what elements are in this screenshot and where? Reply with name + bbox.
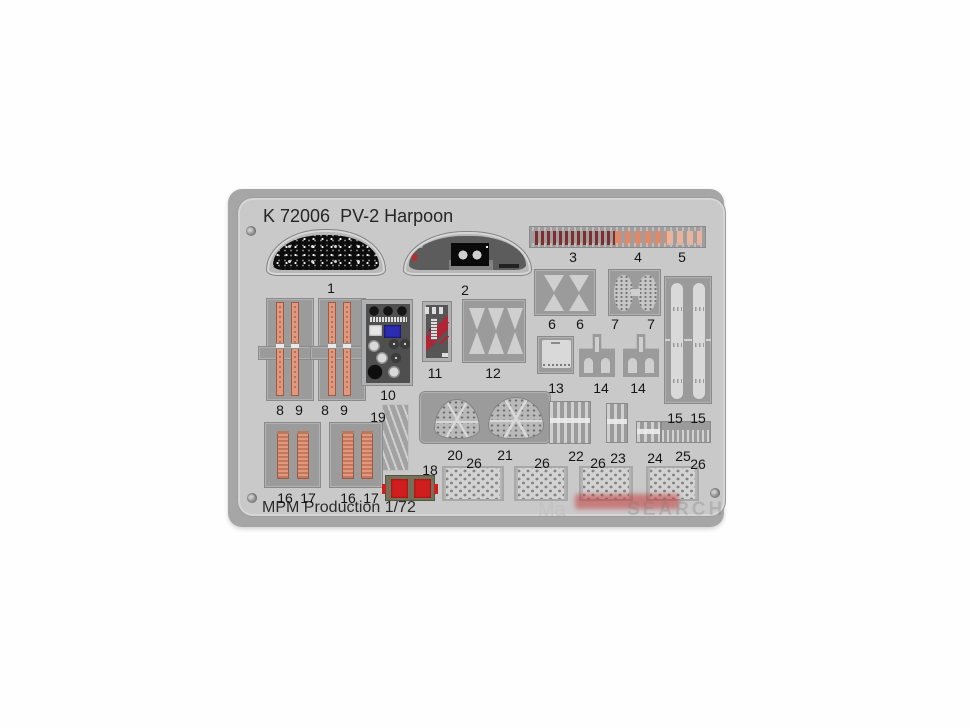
- part-12-plate: [462, 299, 526, 363]
- part-label-25: 25: [675, 449, 691, 463]
- part-16-seatbelt: [277, 431, 289, 479]
- part-10-console-panel: [361, 299, 413, 386]
- part-2-instrument-panel: [403, 231, 532, 276]
- part-label-16: 16: [277, 491, 293, 505]
- placard-white-speck: [442, 353, 448, 357]
- part-8-seatbelt: [328, 302, 336, 396]
- bracket-arch-cutout: [645, 358, 654, 373]
- instrument-panel-face: [273, 235, 379, 270]
- part-label-6: 6: [576, 317, 584, 331]
- part-18-red-placards: [385, 475, 435, 501]
- part-label-11: 11: [428, 366, 443, 380]
- part-label-15: 15: [667, 411, 683, 425]
- part-label-5: 5: [678, 250, 686, 264]
- box-face: [542, 340, 571, 368]
- fret-title: K 72006 PV-2 Harpoon: [263, 206, 453, 227]
- part-17-seatbelt: [361, 431, 373, 479]
- part-22-belt-stack: [549, 401, 591, 444]
- part-label-10: 10: [380, 388, 396, 402]
- part-13-box-part: [537, 336, 574, 374]
- part-label-13: 13: [548, 381, 564, 395]
- part-label-7: 7: [647, 317, 655, 331]
- rivet-hole: [247, 493, 257, 503]
- part-label-12: 12: [485, 366, 501, 380]
- part-label-14: 14: [593, 381, 609, 395]
- part-label-8: 8: [321, 403, 329, 417]
- part-label-8: 8: [276, 403, 284, 417]
- part-label-7: 7: [611, 317, 619, 331]
- part-label-26: 26: [466, 456, 482, 470]
- part-label-9: 9: [340, 403, 348, 417]
- part-label-24: 24: [647, 451, 663, 465]
- parts-7-plate: [608, 269, 661, 316]
- part-label-15: 15: [690, 411, 706, 425]
- watermark-text-right: SEARCH: [627, 499, 725, 521]
- fan-bridge: [631, 289, 640, 296]
- part-17-seatbelt: [297, 431, 309, 479]
- part-label-14: 14: [630, 381, 646, 395]
- part-16-seatbelt: [342, 431, 354, 479]
- photo-etch-fret: K 72006 PV-2 Harpoon MPM Production 1/72: [237, 197, 726, 517]
- console-face: [366, 304, 410, 383]
- rivet-hole: [246, 226, 256, 236]
- part-3-dark-red-segments: [535, 231, 615, 245]
- placard-red-mark: [439, 322, 449, 330]
- part-label-26: 26: [690, 457, 706, 471]
- part-label-20: 20: [447, 448, 463, 462]
- console-text-strip: [369, 317, 407, 322]
- parts-3-4-5-strip: [529, 226, 706, 248]
- part-24-small-strips: [636, 421, 661, 443]
- red-tab: [382, 484, 386, 494]
- red-placard: [391, 479, 408, 498]
- part-20-mesh-dome: [434, 399, 480, 439]
- product-photo: K 72006 PV-2 Harpoon MPM Production 1/72: [0, 0, 970, 728]
- parts-6-plate: [534, 269, 596, 316]
- red-placard: [414, 479, 431, 498]
- red-tab: [434, 484, 438, 494]
- part-11-placard-panel: [422, 301, 452, 362]
- instrument-panel-face: [409, 236, 526, 270]
- part-6-hourglass-cutout: [544, 275, 564, 311]
- rivet-hole: [710, 488, 720, 498]
- console-blue-module: [384, 325, 401, 338]
- part-label-4: 4: [634, 250, 642, 264]
- console-white-module: [369, 325, 382, 336]
- part-1-instrument-panel: [266, 229, 386, 276]
- part-15-strip: [692, 282, 706, 400]
- part-label-19: 19: [370, 410, 386, 424]
- part-14-bracket: [623, 334, 659, 377]
- part-5-light-salmon-segments: [667, 231, 702, 245]
- part-label-17: 17: [363, 491, 379, 505]
- part-7-mesh-fan: [638, 275, 657, 311]
- bracket-arch-cutout: [601, 358, 610, 373]
- parts-20-21-plate: [419, 391, 551, 444]
- part-14-bracket: [579, 334, 615, 377]
- part-label-16: 16: [340, 491, 356, 505]
- part-label-23: 23: [610, 451, 626, 465]
- part-label-21: 21: [497, 448, 513, 462]
- parts-16-17-belt-backing: [329, 422, 383, 488]
- bracket-arch-cutout: [628, 358, 637, 373]
- part-label-3: 3: [569, 250, 577, 264]
- part-label-1: 1: [327, 281, 335, 295]
- part-label-6: 6: [548, 317, 556, 331]
- part-15-strip: [670, 282, 684, 400]
- part-12-hourglass-cutout: [469, 308, 485, 354]
- parts-16-17-belt-backing: [264, 422, 321, 488]
- placard-white-bits: [425, 307, 445, 314]
- part-4-salmon-segments: [615, 231, 667, 245]
- part-21-mesh-dome: [488, 397, 544, 439]
- part-label-9: 9: [295, 403, 303, 417]
- part-23-belt-stack: [606, 403, 628, 443]
- part-26-mesh-plate: [442, 466, 504, 501]
- part-12-hourglass-cutout: [488, 308, 504, 354]
- parts-15-plate: [664, 276, 712, 404]
- part-label-18: 18: [422, 463, 438, 477]
- part-6-hourglass-cutout: [569, 275, 589, 311]
- bracket-arch-cutout: [584, 358, 593, 373]
- bracket-slot: [639, 337, 643, 352]
- bracket-slot: [595, 337, 599, 352]
- part-12-hourglass-cutout: [507, 308, 523, 354]
- placard-dotted-column: [431, 318, 437, 340]
- part-label-2: 2: [461, 283, 469, 297]
- part-8-seatbelt: [276, 302, 284, 396]
- part-9-seatbelt: [343, 302, 351, 396]
- part-label-26: 26: [590, 456, 606, 470]
- part-label-17: 17: [300, 491, 316, 505]
- placard-red-mark: [439, 336, 449, 344]
- part-label-22: 22: [568, 449, 584, 463]
- watermark-text-left: Ma: [538, 499, 566, 522]
- part-26-mesh-plate: [514, 466, 568, 501]
- part-9-seatbelt: [291, 302, 299, 396]
- part-label-26: 26: [534, 456, 550, 470]
